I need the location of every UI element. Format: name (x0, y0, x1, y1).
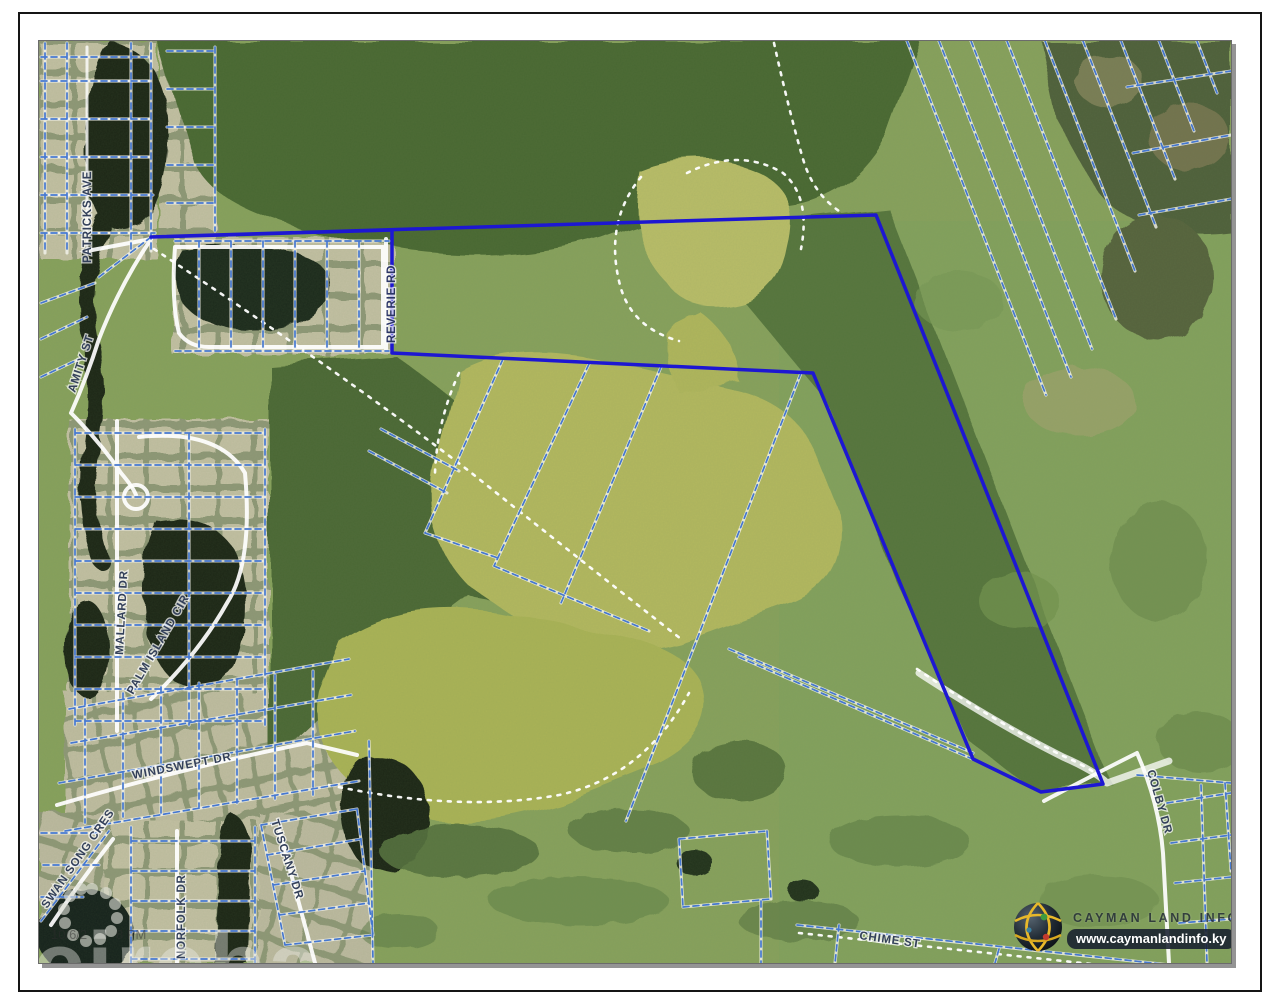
terrain-layer (39, 41, 1231, 963)
cayman-land-info-logo: CAYMAN LAND INFO www.caymanlandinfo.ky (1011, 897, 1229, 959)
cireba-watermark: cireba (38, 919, 322, 964)
globe-icon (1011, 897, 1065, 957)
street-label-patricks-ave: PATRICKS AVE (82, 171, 94, 263)
street-label-reverie-rd: REVERIE RD (386, 265, 398, 343)
logo-url-badge: www.caymanlandinfo.ky (1067, 929, 1232, 949)
aerial-map-canvas: PATRICKS AVE AMITY ST REVERIE RD MALLARD… (39, 41, 1231, 963)
map-image: PATRICKS AVE AMITY ST REVERIE RD MALLARD… (38, 40, 1232, 964)
logo-title: CAYMAN LAND INFO (1073, 911, 1232, 925)
